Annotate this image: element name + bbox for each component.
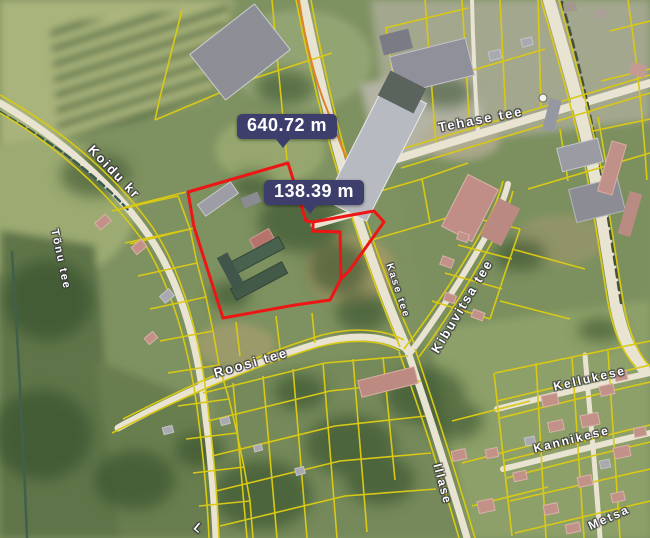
measurement-perimeter-value: 640.72 m	[247, 115, 327, 135]
poi-marker	[539, 94, 547, 102]
badge-pointer	[275, 138, 291, 148]
satellite-map[interactable]	[0, 0, 650, 538]
measurement-badge-perimeter: 640.72 m	[237, 114, 337, 139]
measurement-segment-value: 138.39 m	[274, 181, 354, 201]
badge-pointer	[302, 204, 318, 214]
measurement-badge-segment: 138.39 m	[264, 180, 364, 205]
map-viewport[interactable]: Koidu kr Tõnu tee Tehase tee Kase tee Ki…	[0, 0, 650, 538]
